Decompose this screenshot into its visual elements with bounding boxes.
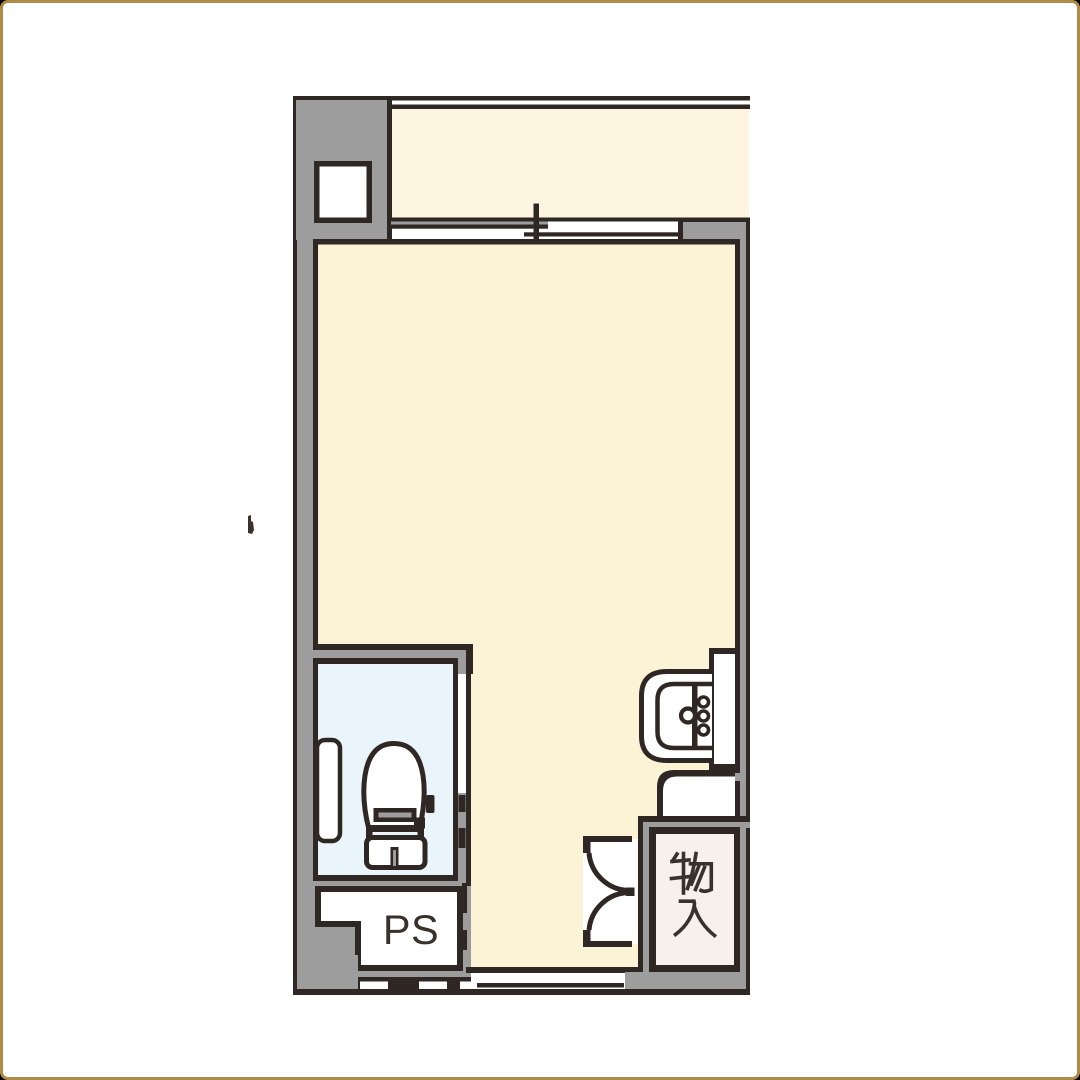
svg-text:PS: PS xyxy=(383,906,439,953)
